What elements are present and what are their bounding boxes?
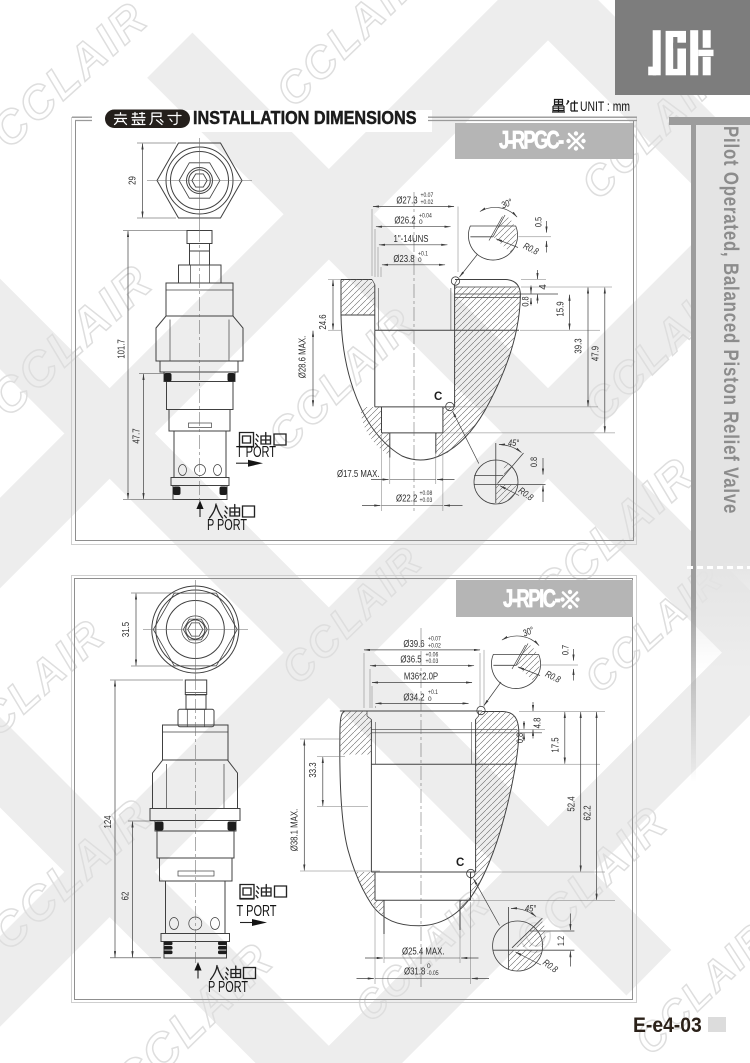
svg-text:+0.02: +0.02 <box>421 199 434 206</box>
svg-text:Ø36.5: Ø36.5 <box>400 655 422 666</box>
svg-text:Ø31.8: Ø31.8 <box>404 967 426 978</box>
svg-text:31.5: 31.5 <box>121 622 132 638</box>
svg-text:Ø23.8: Ø23.8 <box>393 254 415 265</box>
svg-text:Ø39.6: Ø39.6 <box>403 639 425 650</box>
svg-text:33.3: 33.3 <box>308 762 319 778</box>
svg-text:30°: 30° <box>521 625 536 640</box>
svg-text:-0.05: -0.05 <box>427 970 439 977</box>
svg-text:24.6: 24.6 <box>318 314 329 330</box>
svg-text:R0.8: R0.8 <box>543 669 562 686</box>
svg-text:Ø28.6 MAX.: Ø28.6 MAX. <box>298 336 309 379</box>
svg-text:0.5: 0.5 <box>534 217 545 227</box>
svg-text:T PORT: T PORT <box>236 444 276 461</box>
svg-text:0.7: 0.7 <box>561 645 572 655</box>
svg-text:R0.8: R0.8 <box>521 241 540 258</box>
svg-text:4: 4 <box>538 284 549 290</box>
svg-text:0: 0 <box>419 219 423 226</box>
svg-text:R0.8: R0.8 <box>540 957 560 975</box>
svg-text:Ø25.4 MAX.: Ø25.4 MAX. <box>402 947 445 958</box>
svg-text:101.7: 101.7 <box>117 339 128 359</box>
svg-text:Ø38.1 MAX.: Ø38.1 MAX. <box>290 809 301 852</box>
svg-text:+0.02: +0.02 <box>428 642 441 649</box>
svg-text:Ø34.2: Ø34.2 <box>403 692 425 703</box>
svg-text:52.4: 52.4 <box>567 796 578 812</box>
svg-text:0: 0 <box>418 257 422 264</box>
svg-text:+0.03: +0.03 <box>420 497 433 504</box>
svg-text:62: 62 <box>121 891 132 900</box>
svg-text:0.8: 0.8 <box>515 733 526 743</box>
svg-text:1.2: 1.2 <box>556 936 567 946</box>
svg-text:0.8: 0.8 <box>521 296 532 306</box>
svg-text:29: 29 <box>128 176 139 185</box>
svg-text:+0.03: +0.03 <box>426 658 439 665</box>
svg-text:C: C <box>434 391 442 403</box>
svg-text:Ø27.3: Ø27.3 <box>396 196 418 207</box>
svg-text:0.8: 0.8 <box>529 457 540 467</box>
svg-text:T PORT: T PORT <box>237 903 277 920</box>
svg-text:4.8: 4.8 <box>533 717 544 728</box>
svg-text:M36*2.0P: M36*2.0P <box>404 672 439 683</box>
svg-text:Ø26.2: Ø26.2 <box>394 216 416 227</box>
svg-text:124: 124 <box>103 815 114 828</box>
svg-text:C: C <box>456 857 464 869</box>
svg-text:62.2: 62.2 <box>583 805 594 821</box>
svg-text:45°: 45° <box>508 438 519 449</box>
svg-text:17.5: 17.5 <box>551 737 562 753</box>
svg-text:R0.8: R0.8 <box>516 485 536 503</box>
svg-text:P PORT: P PORT <box>208 979 248 996</box>
svg-text:Ø17.5 MAX.: Ø17.5 MAX. <box>337 469 380 480</box>
svg-text:15.9: 15.9 <box>556 301 567 317</box>
svg-text:39.3: 39.3 <box>574 338 585 354</box>
svg-text:47.7: 47.7 <box>132 428 143 444</box>
svg-text:P PORT: P PORT <box>207 517 247 534</box>
svg-text:Ø22.2: Ø22.2 <box>396 494 418 505</box>
svg-text:1"-14UNS: 1"-14UNS <box>394 234 429 245</box>
svg-text:0: 0 <box>428 696 432 703</box>
svg-text:47.9: 47.9 <box>590 346 601 362</box>
svg-text:30°: 30° <box>500 197 515 212</box>
